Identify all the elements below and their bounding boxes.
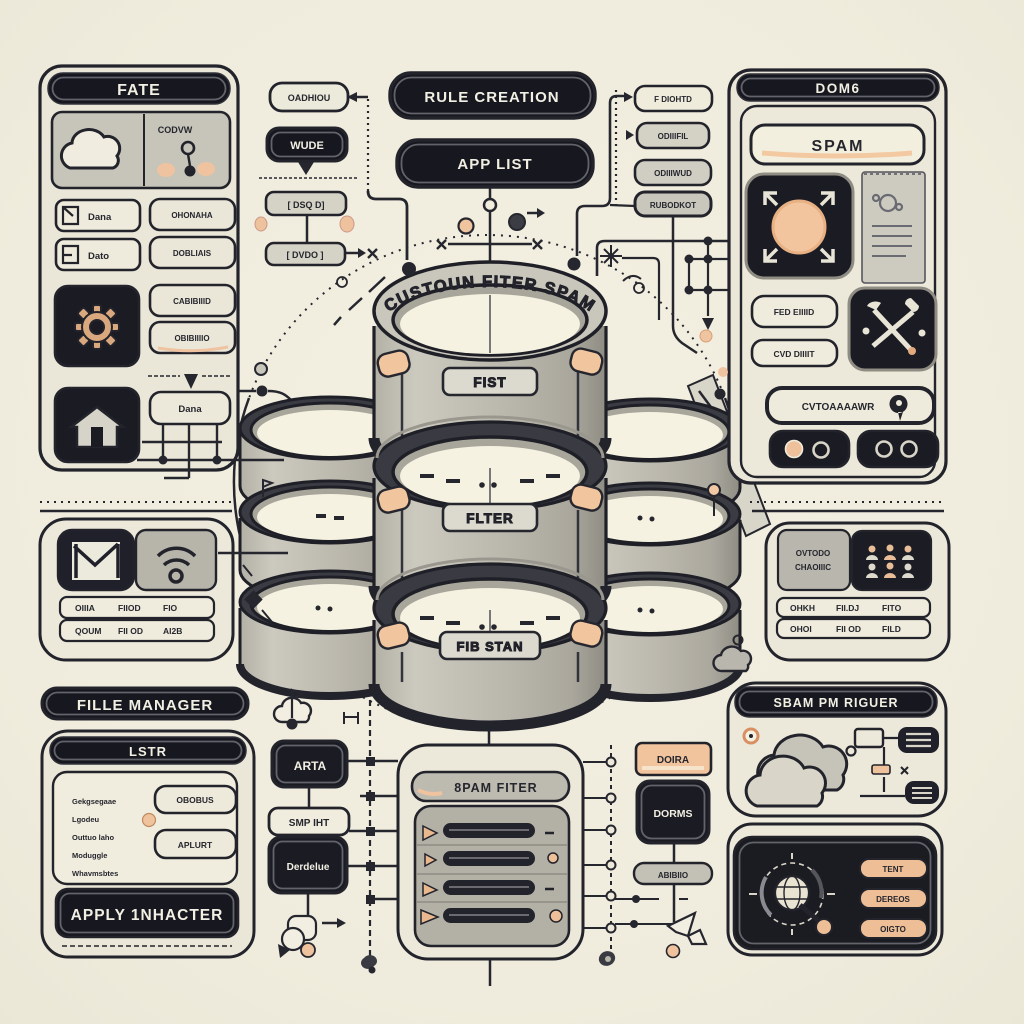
svg-text:OADHIOU: OADHIOU	[288, 93, 331, 103]
svg-text:OIGTO: OIGTO	[880, 925, 906, 934]
svg-text:TENT: TENT	[883, 865, 904, 874]
svg-text:SBAM PM RIGUER: SBAM PM RIGUER	[773, 696, 898, 710]
svg-text:SPAM: SPAM	[811, 138, 864, 155]
svg-text:FLTER: FLTER	[466, 511, 514, 526]
svg-text:Whavmsbtes: Whavmsbtes	[72, 869, 118, 878]
svg-text:APP LIST: APP LIST	[457, 156, 532, 173]
svg-text:FIO: FIO	[163, 603, 178, 613]
svg-text:ODIIIFIL: ODIIIFIL	[658, 132, 689, 141]
svg-text:RUBODKOT: RUBODKOT	[650, 201, 696, 210]
svg-text:Gekgsegaae: Gekgsegaae	[72, 797, 116, 806]
svg-text:FII OD: FII OD	[118, 626, 143, 636]
svg-text:APPLY 1NHACTER: APPLY 1NHACTER	[71, 907, 224, 924]
svg-text:OHONAHA: OHONAHA	[171, 211, 213, 220]
svg-text:FIB STAN: FIB STAN	[457, 639, 524, 654]
svg-text:FILLE MANAGER: FILLE MANAGER	[77, 697, 213, 714]
svg-text:FED EIIIID: FED EIIIID	[774, 307, 815, 317]
svg-text:FII.DJ: FII.DJ	[836, 603, 859, 613]
svg-text:CVD DIIIIT: CVD DIIIIT	[773, 349, 815, 359]
svg-text:QOUM: QOUM	[75, 626, 101, 636]
svg-text:Dato: Dato	[88, 251, 109, 262]
svg-text:FIST: FIST	[473, 375, 506, 390]
svg-text:FITO: FITO	[882, 603, 902, 613]
svg-text:WUDE: WUDE	[290, 140, 324, 152]
svg-text:LSTR: LSTR	[129, 744, 167, 759]
svg-text:Derdelue: Derdelue	[287, 862, 330, 873]
svg-text:OIIIA: OIIIA	[75, 603, 95, 613]
svg-text:Dana: Dana	[178, 404, 202, 415]
svg-text:[ DVDO ]: [ DVDO ]	[287, 250, 324, 260]
svg-text:OVTODO: OVTODO	[796, 549, 831, 558]
svg-text:Lgodeu: Lgodeu	[72, 815, 99, 824]
svg-text:ABIBIIO: ABIBIIO	[658, 871, 688, 880]
svg-text:OBOBUS: OBOBUS	[176, 795, 214, 805]
svg-text:ARTA: ARTA	[294, 759, 327, 773]
svg-text:RULE CREATION: RULE CREATION	[424, 89, 559, 106]
svg-text:F DIOHTD: F DIOHTD	[654, 95, 692, 104]
svg-text:[ DSQ D]: [ DSQ D]	[288, 200, 325, 210]
svg-text:SMP IHT: SMP IHT	[289, 818, 329, 829]
svg-text:FATE: FATE	[117, 82, 161, 99]
svg-text:FILD: FILD	[882, 624, 901, 634]
svg-text:OHKH: OHKH	[790, 603, 815, 613]
svg-text:FIIOD: FIIOD	[118, 603, 141, 613]
svg-text:Moduggle: Moduggle	[72, 851, 107, 860]
svg-text:DORMS: DORMS	[653, 808, 692, 820]
svg-text:Dana: Dana	[88, 212, 112, 223]
svg-text:Outtuo laho: Outtuo laho	[72, 833, 114, 842]
svg-text:DOBLIAIS: DOBLIAIS	[173, 249, 212, 258]
svg-text:CABIBIIID: CABIBIIID	[173, 297, 211, 306]
svg-text:AI2B: AI2B	[163, 626, 182, 636]
svg-text:CHAOIIIC: CHAOIIIC	[795, 563, 831, 572]
svg-text:APLURT: APLURT	[178, 840, 213, 850]
svg-text:ODIIIWUD: ODIIIWUD	[654, 169, 692, 178]
svg-text:CVTOAAAAWR: CVTOAAAAWR	[802, 402, 875, 413]
svg-text:DOIRA: DOIRA	[657, 755, 689, 766]
svg-text:FII OD: FII OD	[836, 624, 861, 634]
svg-text:OHOI: OHOI	[790, 624, 812, 634]
svg-text:DEREOS: DEREOS	[876, 895, 910, 904]
svg-text:CODVW: CODVW	[158, 125, 193, 135]
svg-text:DOM6: DOM6	[815, 81, 860, 96]
svg-text:8PAM FITER: 8PAM FITER	[454, 781, 537, 795]
svg-text:OBIBIIIIO: OBIBIIIIO	[174, 334, 209, 343]
